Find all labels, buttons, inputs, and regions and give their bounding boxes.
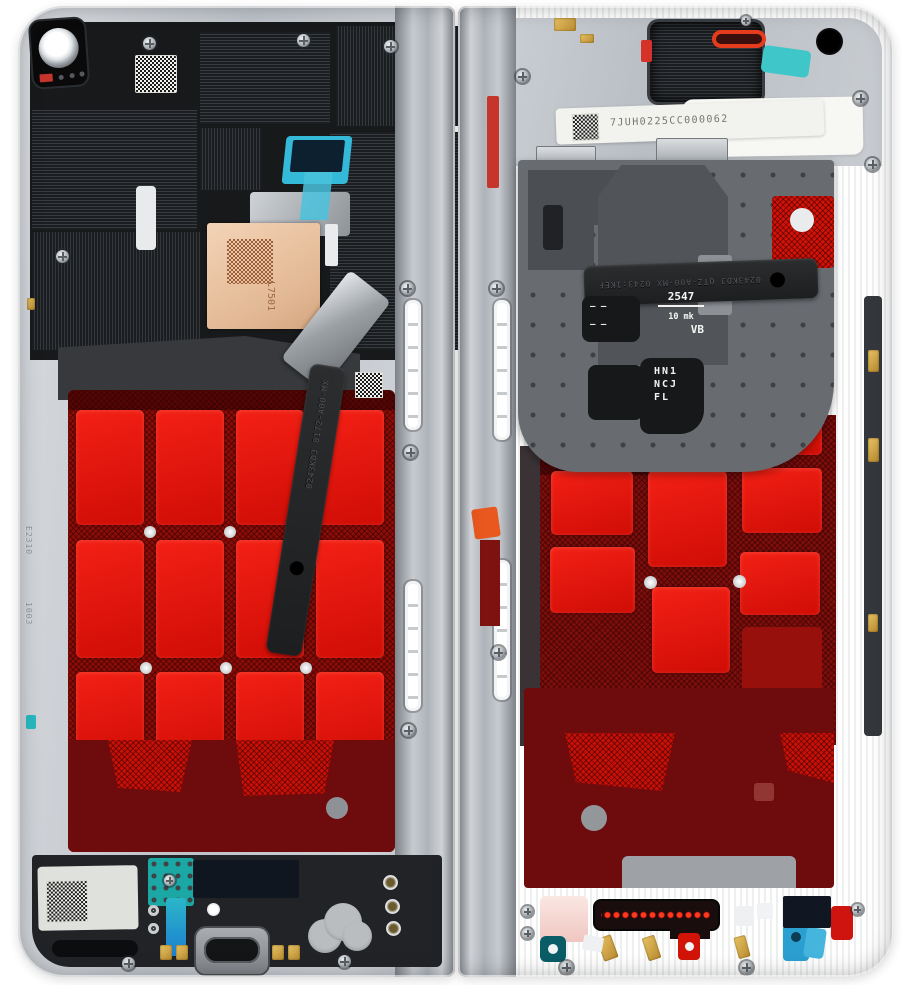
screw (122, 957, 135, 970)
teal-edge-component (26, 715, 36, 729)
white-bracket (582, 934, 604, 952)
screw (740, 961, 753, 974)
flex-strip-marking: 0243KDJ QTZ-A00-MX 0243:1KEF (598, 275, 761, 290)
screw (854, 92, 867, 105)
flex-black-window (588, 365, 643, 420)
screw (401, 282, 414, 295)
red-flex-sliver (487, 96, 499, 188)
screw (384, 40, 397, 53)
mic-hole-ring (207, 903, 220, 916)
adhesive-cell (156, 410, 224, 525)
orange-pull-tab (471, 506, 501, 539)
adhesive-trapezoid (108, 740, 192, 792)
pcb-shield (32, 110, 197, 230)
marking-fl: FL (654, 392, 704, 403)
usb-port-opening (204, 937, 260, 963)
antenna-window (783, 896, 831, 928)
red-gasket-ring (712, 30, 766, 48)
red-adhesive-zone (68, 390, 395, 852)
white-spacer-bar (136, 186, 156, 250)
serial-datamatrix (572, 113, 600, 141)
adhesive-cell (76, 540, 144, 658)
red-edge-tab (641, 40, 652, 62)
adhesive-trapezoid (236, 740, 334, 796)
marking-2547: 2547 (658, 290, 704, 307)
camera-contact-dot (69, 73, 74, 78)
white-bracket (736, 906, 754, 926)
photo-stage: L7501 (0, 0, 904, 985)
dash-marking: — — (590, 302, 606, 312)
marking-hn1: HN1 (654, 366, 704, 377)
antenna-pin (642, 935, 662, 962)
screw (522, 906, 533, 917)
qr-mini-sticker (355, 372, 383, 398)
copper-shield-pad: L7501 (207, 223, 320, 329)
pcb-shield (32, 232, 200, 350)
adhesive-cell (156, 540, 224, 658)
camera-red-chip (39, 74, 53, 83)
teal-grommet (540, 936, 566, 962)
screw-boss-dot (220, 662, 232, 674)
screw (404, 446, 417, 459)
qr-sticker (135, 55, 177, 93)
antenna-window (193, 860, 299, 898)
screw (866, 158, 879, 171)
screw (522, 928, 533, 939)
pcb-shield (200, 32, 330, 124)
adhesive-cell (551, 471, 633, 535)
screw (492, 646, 505, 659)
edge-contact (868, 438, 879, 462)
marking-vb: VB (658, 323, 704, 336)
flex-cutout-window: — — — — (582, 296, 640, 342)
hinge-slot (405, 300, 421, 430)
hinge-slot (405, 581, 421, 711)
flex-black-slot (543, 205, 563, 250)
camera-contact-dot (79, 71, 84, 76)
red-mesh-patch (772, 196, 834, 268)
screw (338, 955, 351, 968)
marking-ncj: NCJ (654, 379, 704, 390)
screw (402, 724, 415, 737)
camera-lens (37, 27, 80, 70)
copper-pad-marking: L7501 (265, 281, 276, 311)
adhesive-cell (648, 471, 727, 567)
marking-10mk: 10 mk (658, 312, 704, 322)
alignment-hole (326, 797, 348, 819)
edge-contact (868, 614, 878, 632)
screw-boss-dot (144, 526, 156, 538)
left-frame-half: L7501 (18, 6, 455, 977)
screw-boss-dot (140, 662, 152, 674)
sticker-hole (791, 932, 801, 942)
screw (143, 37, 156, 50)
speaker-marking-block: 2547 10 mk VB (658, 290, 704, 356)
contact-ring (148, 923, 159, 934)
charging-contact (160, 945, 172, 960)
screw (516, 70, 529, 83)
adhesive-cell (550, 547, 635, 613)
screw (741, 16, 751, 26)
cloud-shaped-pad (308, 903, 372, 953)
red-zone-top-shadow (68, 390, 395, 410)
charging-contact (176, 945, 188, 960)
speaker-grille-slot (52, 940, 138, 957)
blue-film-dark (290, 140, 345, 172)
frame-notch (622, 856, 796, 888)
edge-contact (27, 298, 35, 310)
strip-hole (289, 560, 305, 576)
screw (56, 250, 69, 263)
adhesive-cell (76, 410, 144, 525)
edge-contact (554, 18, 576, 31)
adhesive-cell (316, 540, 384, 658)
scuff-mark (754, 783, 774, 801)
qr-code (46, 880, 89, 923)
module-marking-block: HN1 NCJ FL (640, 358, 704, 434)
antenna-pin (733, 935, 750, 959)
adhesive-cell (742, 468, 822, 533)
screw-boss-dot (224, 526, 236, 538)
screw-boss-dot (300, 662, 312, 674)
hinge-slot (494, 300, 510, 440)
grommet-hole (548, 944, 558, 954)
adhesive-cell (652, 587, 730, 673)
red-tab (678, 933, 700, 960)
screw-boss-dot (733, 575, 746, 588)
right-frame-half: 7JUH0225CC000062 (458, 6, 894, 977)
dark-red-strip (480, 540, 500, 626)
edge-contact (580, 34, 594, 43)
dash-marking: — — (590, 320, 606, 330)
white-chip (757, 903, 773, 919)
screw (560, 961, 573, 974)
screw (297, 34, 310, 47)
hinge-rail (395, 6, 455, 977)
white-mini-label (325, 224, 338, 266)
pcb-shield (200, 128, 262, 190)
flex-strip-marking: 0243KDJ 0172-A00-MX (304, 379, 330, 490)
blue-film-tail (300, 172, 333, 220)
screw (852, 904, 863, 915)
blue-sticker-light (803, 927, 827, 959)
blue-film-sticker (281, 136, 352, 184)
alignment-hole (581, 805, 607, 831)
pogo-contact (385, 899, 400, 914)
speaker-red-dots (601, 908, 712, 922)
camera-contact-dot (59, 75, 64, 80)
sensor-hole (816, 28, 843, 55)
frame-marking: 1003 (24, 602, 33, 625)
adhesive-trapezoid (565, 733, 675, 791)
charging-contact (288, 945, 300, 960)
adhesive-trapezoid (780, 733, 834, 783)
charging-contact (272, 945, 284, 960)
tab-hole (685, 942, 694, 951)
front-camera-module (30, 18, 88, 88)
screw (164, 875, 175, 886)
adhesive-cell (740, 552, 820, 615)
edge-contact (868, 350, 879, 372)
red-component (831, 906, 853, 940)
strip-hole (770, 272, 786, 288)
serial-number-text: 7JUH0225CC000062 (610, 114, 729, 129)
usb-port-cutout (196, 928, 268, 974)
maroon-lower-panel (524, 688, 834, 888)
bottom-qr-label (37, 865, 138, 931)
frame-marking: E2310 (24, 526, 33, 555)
screw (490, 282, 503, 295)
pogo-contact (383, 875, 398, 890)
cloud-lobe (342, 921, 372, 951)
patch-hole (790, 208, 814, 232)
screw-boss-dot (644, 576, 657, 589)
contact-ring (148, 905, 159, 916)
copper-datamatrix (227, 239, 273, 284)
pogo-contact (386, 921, 401, 936)
